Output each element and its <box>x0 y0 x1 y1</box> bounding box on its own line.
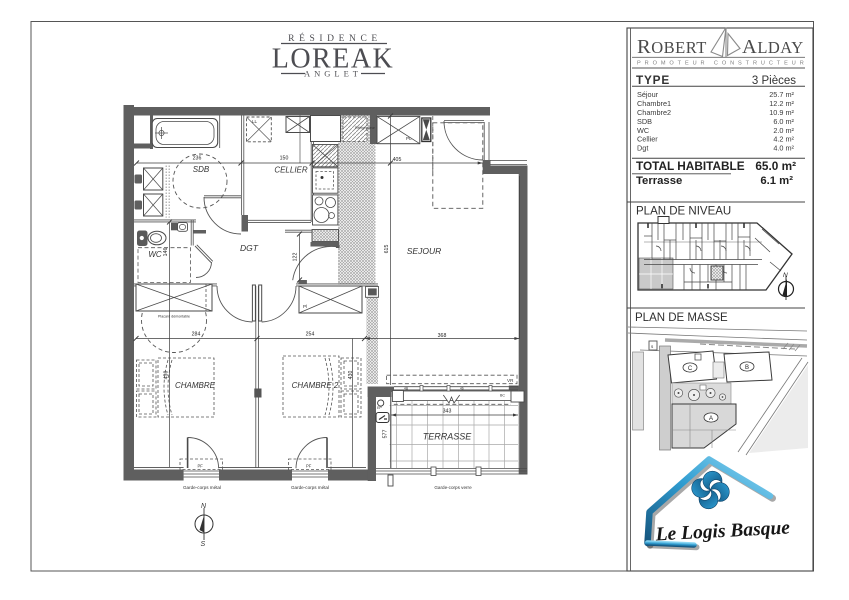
svg-text:PF: PF <box>306 464 312 469</box>
svg-text:WC: WC <box>148 250 162 259</box>
svg-text:PROMOTEUR CONSTRUCTEUR: PROMOTEUR CONSTRUCTEUR <box>637 61 808 67</box>
svg-text:577: 577 <box>383 430 389 439</box>
svg-text:150: 150 <box>280 156 289 162</box>
svg-text:430: 430 <box>164 371 170 380</box>
svg-text:25.7 m²: 25.7 m² <box>769 90 794 99</box>
svg-text:430: 430 <box>348 371 354 380</box>
svg-text:BC: BC <box>500 394 505 398</box>
svg-text:6.1 m²: 6.1 m² <box>760 175 793 187</box>
svg-text:236: 236 <box>193 156 202 162</box>
svg-text:SDB: SDB <box>637 117 652 126</box>
svg-text:65.0 m²: 65.0 m² <box>755 159 796 173</box>
svg-text:C: C <box>688 366 693 372</box>
svg-text:TYPE: TYPE <box>636 73 670 87</box>
svg-text:368: 368 <box>438 333 447 339</box>
svg-text:146: 146 <box>163 248 169 257</box>
svg-text:SDB: SDB <box>193 165 210 174</box>
svg-text:10.9 m²: 10.9 m² <box>769 108 794 117</box>
svg-text:12.2 m²: 12.2 m² <box>769 99 794 108</box>
svg-text:ROBERT: ROBERT <box>637 36 707 58</box>
svg-text:4b: 4b <box>460 387 464 391</box>
svg-text:CHAMBRE 2: CHAMBRE 2 <box>292 381 339 390</box>
svg-text:B: B <box>745 365 749 371</box>
svg-text:TOTAL HABITABLE: TOTAL HABITABLE <box>636 159 745 173</box>
svg-text:Garde-corps métal: Garde-corps métal <box>291 485 329 490</box>
svg-text:Terrasse: Terrasse <box>636 175 682 187</box>
svg-text:122: 122 <box>293 253 299 262</box>
svg-text:4.0 m²: 4.0 m² <box>773 143 794 152</box>
svg-text:6.0 m²: 6.0 m² <box>773 117 794 126</box>
svg-text:PL: PL <box>406 136 412 141</box>
svg-text:Cellier: Cellier <box>637 134 658 143</box>
svg-text:ALDAY: ALDAY <box>742 36 804 58</box>
svg-text:3 Pièces: 3 Pièces <box>752 75 796 87</box>
svg-text:RÉSIDENCE: RÉSIDENCE <box>288 32 382 44</box>
svg-text:615: 615 <box>384 245 390 254</box>
svg-text:TERRASSE: TERRASSE <box>423 432 473 442</box>
svg-text:Dgt: Dgt <box>637 143 648 152</box>
svg-text:Réfrigérateur: Réfrigérateur <box>355 126 376 130</box>
svg-text:ANGLET: ANGLET <box>304 69 362 79</box>
svg-text:254: 254 <box>306 332 315 338</box>
svg-text:PLAN DE MASSE: PLAN DE MASSE <box>635 312 728 324</box>
svg-text:Garde-corps métal: Garde-corps métal <box>183 485 221 490</box>
svg-text:4B: 4B <box>404 387 409 391</box>
svg-text:VR: VR <box>507 378 514 383</box>
svg-text:Chambre2: Chambre2 <box>637 108 671 117</box>
svg-text:S: S <box>201 541 206 548</box>
svg-text:A: A <box>709 416 713 422</box>
svg-text:343: 343 <box>443 409 452 415</box>
svg-text:DGT: DGT <box>240 243 259 253</box>
svg-text:284: 284 <box>192 332 201 338</box>
svg-text:PLAN DE NIVEAU: PLAN DE NIVEAU <box>636 206 731 218</box>
svg-text:Séjour: Séjour <box>637 90 659 99</box>
svg-text:CELLIER: CELLIER <box>274 166 308 175</box>
svg-text:405: 405 <box>393 157 402 163</box>
svg-text:LL: LL <box>252 119 258 124</box>
svg-text:EP: EP <box>377 406 382 410</box>
svg-text:SEJOUR: SEJOUR <box>407 246 441 256</box>
svg-text:Placard démontable: Placard démontable <box>158 315 190 319</box>
svg-text:N: N <box>201 503 207 510</box>
svg-text:Chambre1: Chambre1 <box>637 99 671 108</box>
svg-text:4.2 m²: 4.2 m² <box>773 134 794 143</box>
svg-text:N: N <box>783 272 788 279</box>
svg-text:CHAMBRE: CHAMBRE <box>175 381 216 390</box>
svg-text:PF: PF <box>198 464 204 469</box>
svg-text:Pl: Pl <box>303 304 307 309</box>
svg-text:Garde-corps verre: Garde-corps verre <box>434 485 472 490</box>
